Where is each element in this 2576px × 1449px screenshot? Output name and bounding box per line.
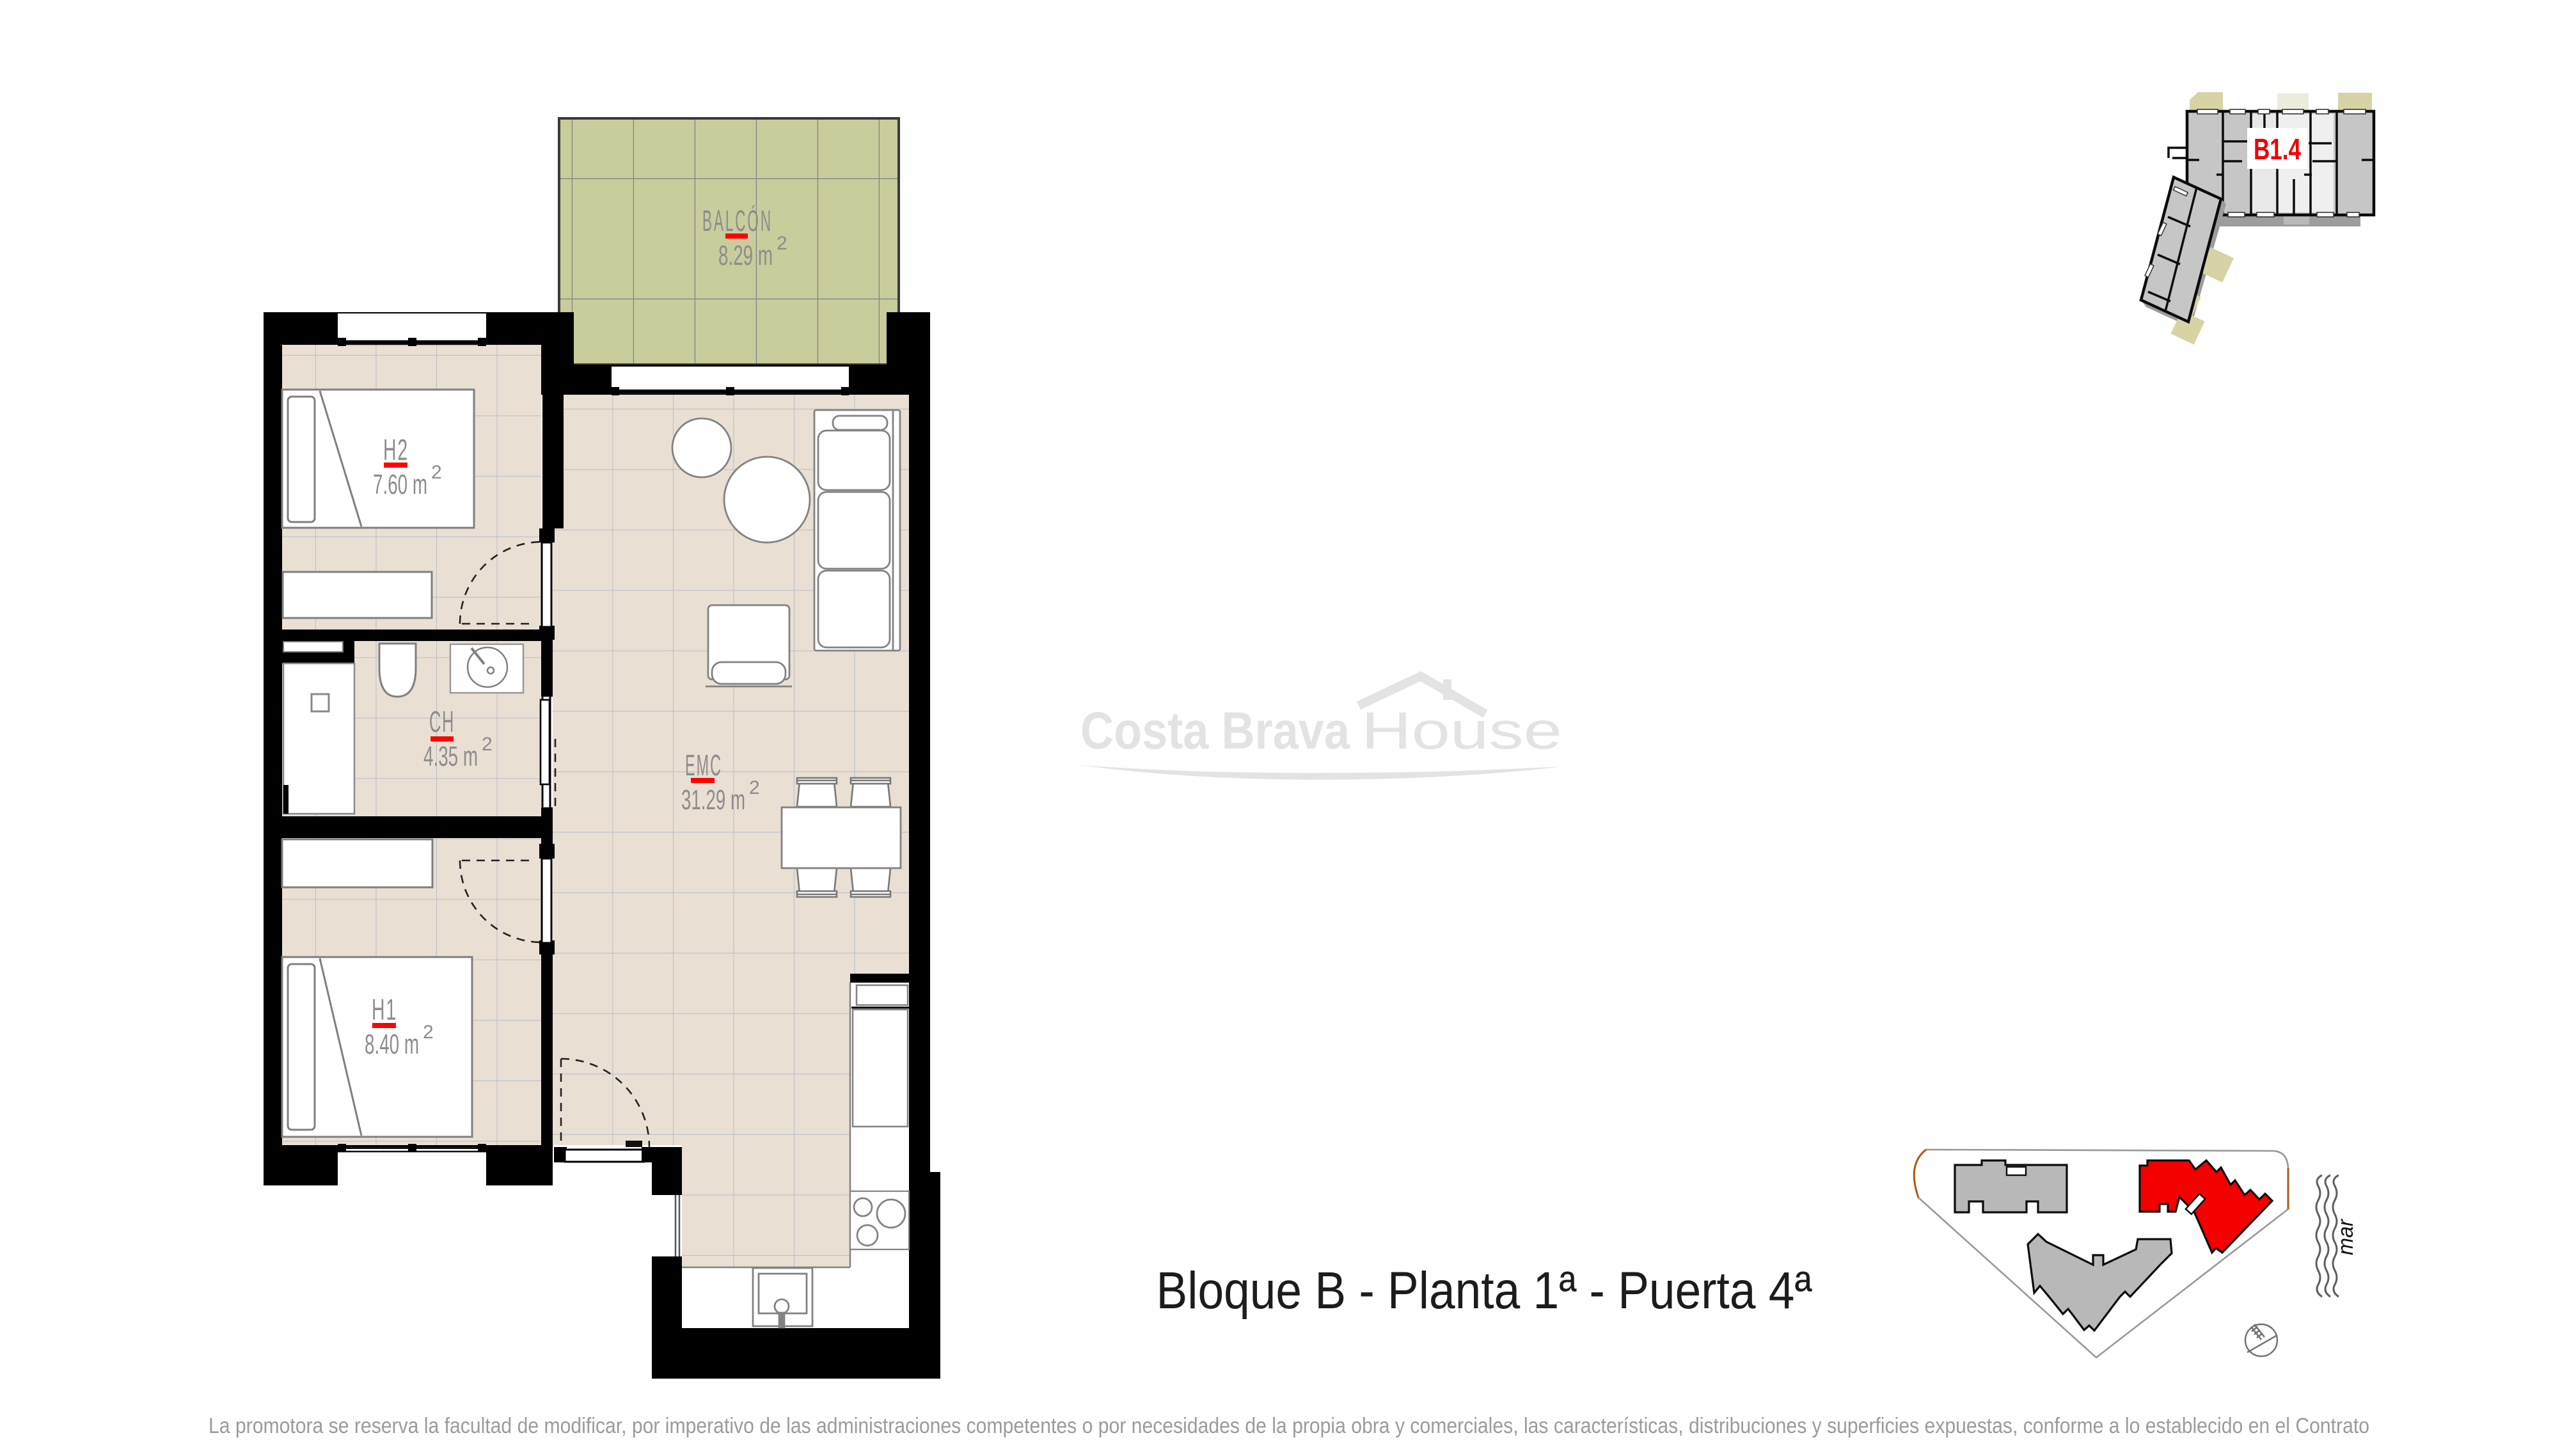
svg-text:2: 2 [749,777,760,798]
svg-text:2: 2 [431,462,442,483]
svg-text:CH: CH [429,705,455,738]
svg-text:4.35 m: 4.35 m [423,741,478,772]
svg-text:House: House [1361,702,1562,760]
svg-text:8.40 m: 8.40 m [365,1029,419,1060]
svg-text:31.29 m: 31.29 m [681,784,745,816]
svg-text:La promotora se reserva la fac: La promotora se reserva la facultad de m… [209,1414,2369,1438]
svg-text:mar: mar [2334,1218,2358,1255]
svg-text:2: 2 [423,1022,434,1043]
svg-text:BALCÓN: BALCÓN [702,204,773,237]
svg-text:B1.4: B1.4 [2254,132,2301,166]
svg-text:EMC: EMC [685,748,722,782]
svg-text:8.29 m: 8.29 m [718,240,773,271]
svg-text:Bloque B - Planta 1ª - Puerta: Bloque B - Planta 1ª - Puerta 4ª [1157,1262,1813,1320]
svg-text:2: 2 [482,734,493,755]
svg-text:Costa Brava: Costa Brava [1080,702,1350,760]
svg-text:7.60 m: 7.60 m [373,469,427,500]
svg-text:2: 2 [777,233,787,254]
svg-text:H1: H1 [372,993,397,1026]
svg-text:H2: H2 [383,433,409,466]
